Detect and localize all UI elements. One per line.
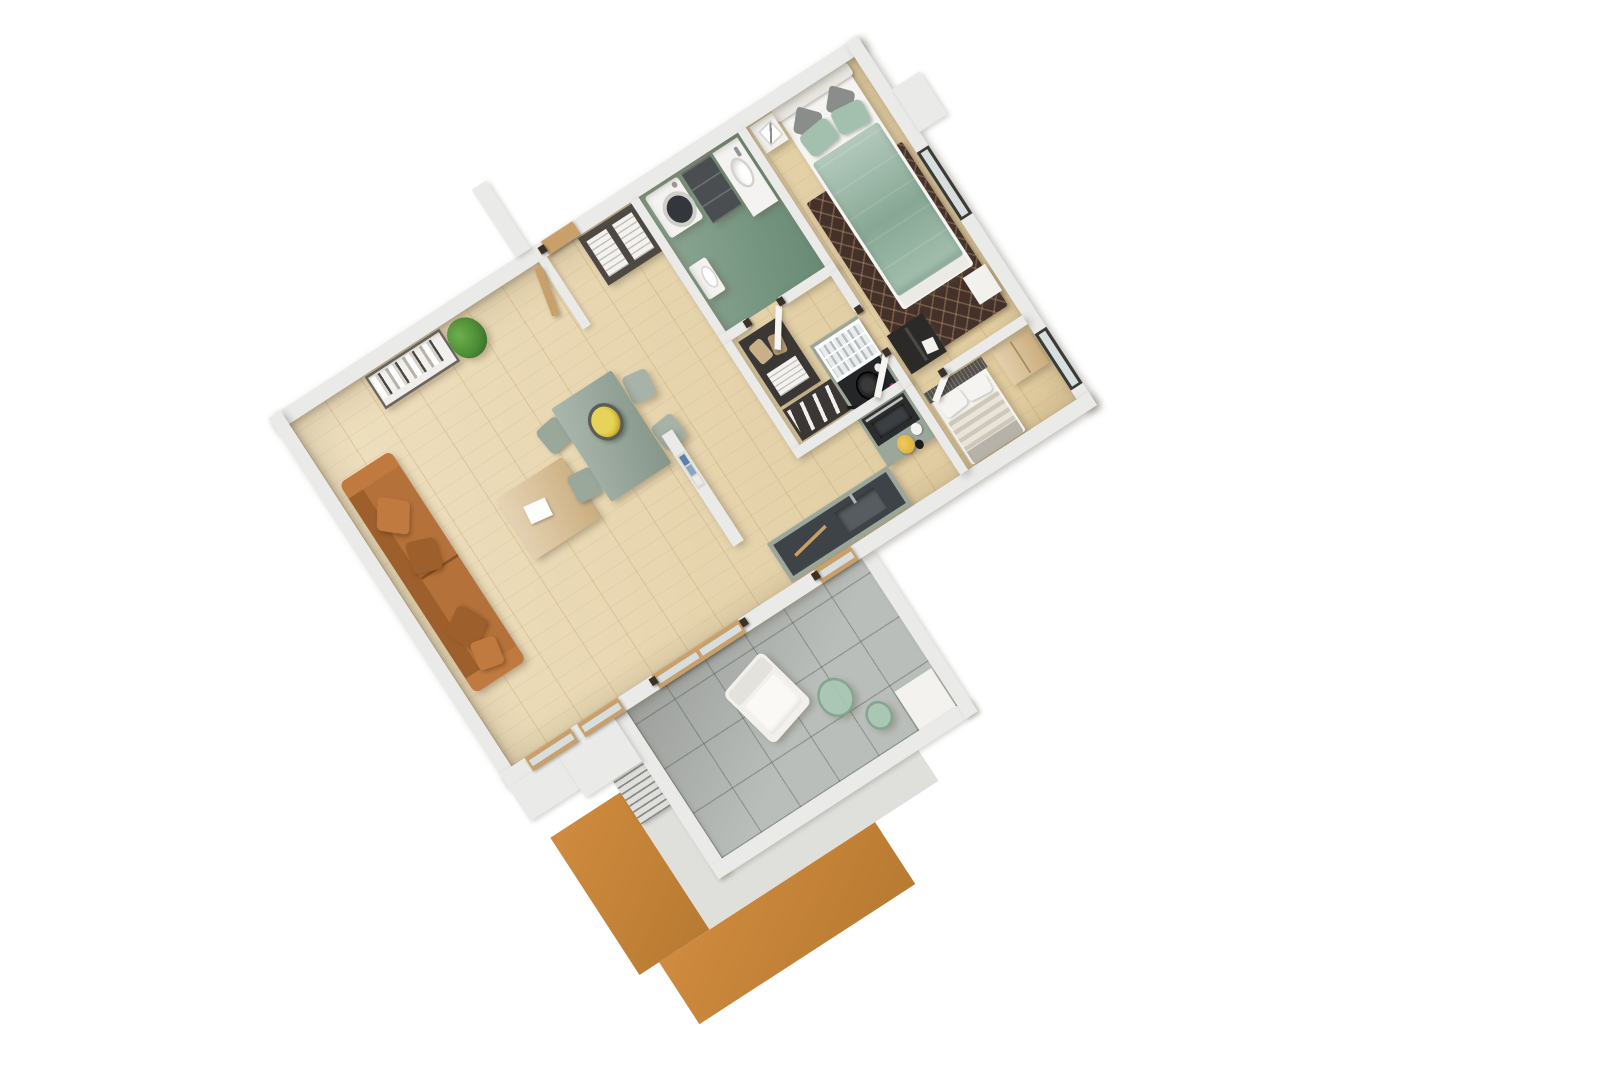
basin-faucet bbox=[733, 146, 742, 157]
bathroom-door-leaf bbox=[774, 305, 782, 350]
closet-linen bbox=[766, 356, 809, 397]
sofa-pillow-1 bbox=[377, 497, 410, 536]
apartment-plan bbox=[236, 0, 1341, 1080]
wood-wardrobe-door-split bbox=[1010, 341, 1031, 373]
book-spine-white bbox=[692, 474, 703, 486]
fruit-bowl bbox=[581, 396, 631, 447]
coffee-table-magazine bbox=[523, 497, 553, 524]
shelf-unit-item bbox=[921, 337, 939, 355]
oven-window bbox=[871, 403, 912, 438]
washer-dial bbox=[671, 181, 679, 189]
neighbor-wall-stub-top bbox=[472, 181, 530, 258]
floor-plan-stage bbox=[0, 0, 1618, 1080]
